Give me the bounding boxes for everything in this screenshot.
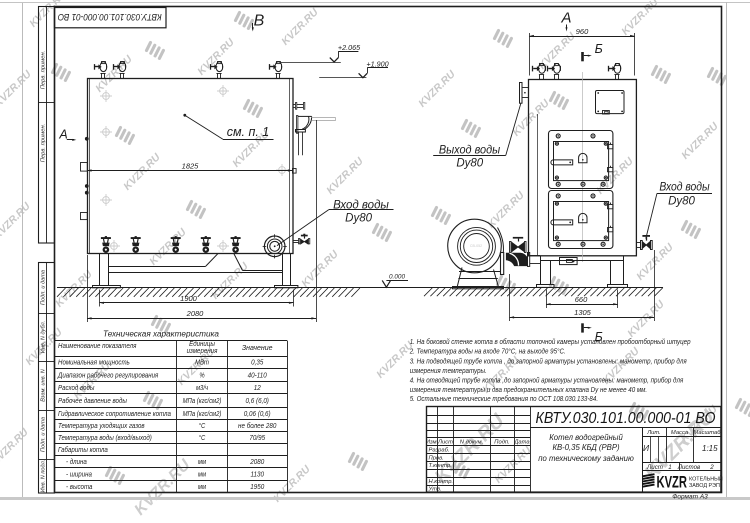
svg-text:1:15: 1:15 [702, 444, 718, 453]
svg-text:Выход воды: Выход воды [439, 144, 501, 156]
svg-text:Температура воды (вход/выход): Температура воды (вход/выход) [58, 434, 152, 442]
svg-text:0.000: 0.000 [389, 273, 405, 280]
svg-text:1: 1 [668, 464, 671, 471]
svg-text:ЗАВОД РЭП: ЗАВОД РЭП [689, 483, 720, 489]
svg-text:Дата: Дата [513, 439, 530, 445]
svg-text:мм: мм [198, 459, 207, 467]
svg-text:2080: 2080 [249, 459, 264, 466]
svg-text:Масса: Масса [671, 430, 689, 436]
svg-text:Dy80: Dy80 [456, 157, 483, 169]
svg-text:МВт: МВт [195, 359, 209, 367]
svg-text:Диапазон рабочего регулировани: Диапазон рабочего регулирования [57, 371, 159, 379]
svg-text:измерения: измерения [187, 348, 218, 355]
svg-text:2080: 2080 [186, 309, 205, 318]
svg-text:40-110: 40-110 [248, 372, 267, 379]
svg-text:°С: °С [199, 434, 206, 443]
svg-text:0,35: 0,35 [251, 359, 264, 366]
svg-text:Лист: Лист [646, 464, 663, 471]
svg-text:2: 2 [709, 464, 714, 471]
svg-text:5. Остальные технические треб: 5. Остальные технические требования по О… [410, 395, 598, 404]
svg-text:+1.900: +1.900 [366, 59, 388, 68]
svg-text:°С: °С [199, 422, 206, 431]
svg-text:Dy80: Dy80 [345, 212, 372, 224]
svg-text:Подп.: Подп. [494, 439, 509, 445]
svg-text:А: А [58, 128, 67, 142]
svg-text:Гидравлическое сопротивление к: Гидравлическое сопротивление котла [58, 410, 171, 418]
svg-text:м3/ч: м3/ч [196, 385, 209, 393]
svg-text:мм: мм [198, 483, 207, 491]
svg-text:Техническая характеристика: Техническая характеристика [103, 330, 219, 339]
svg-text:Лист: Лист [437, 439, 453, 445]
svg-text:Рабочее давление воды: Рабочее давление воды [58, 397, 127, 405]
svg-text:660: 660 [575, 295, 588, 304]
svg-text:12: 12 [254, 385, 261, 392]
svg-text:Перв. примен.: Перв. примен. [41, 124, 47, 163]
svg-text:Б: Б [595, 42, 603, 56]
svg-text:1900: 1900 [180, 294, 198, 303]
svg-text:не более 280: не более 280 [238, 422, 277, 430]
svg-text:Dy80: Dy80 [668, 195, 695, 207]
svg-text:70/95: 70/95 [249, 435, 265, 442]
svg-text:1. На боковой стенке котла в: 1. На боковой стенке котла в области топ… [410, 338, 691, 347]
svg-text:по техническому заданию: по техническому заданию [538, 453, 634, 462]
svg-text:960: 960 [576, 27, 589, 36]
svg-text:Перв. примен.: Перв. примен. [41, 51, 47, 90]
svg-text:1825: 1825 [182, 162, 200, 171]
svg-text:В: В [254, 13, 265, 30]
svg-text:Формат А3: Формат А3 [672, 493, 708, 500]
svg-text:МПа (кгс/см2): МПа (кгс/см2) [183, 411, 222, 419]
svg-text:Расход воды: Расход воды [58, 384, 95, 392]
svg-text:KVZR: KVZR [657, 474, 688, 492]
svg-text:Номинальная мощность: Номинальная мощность [58, 359, 130, 366]
svg-text:А: А [560, 10, 571, 27]
svg-text:+2.065: +2.065 [338, 43, 361, 52]
svg-text:Вход воды: Вход воды [659, 181, 709, 194]
svg-text:Разраб.: Разраб. [429, 448, 450, 454]
svg-text:Инв. N дубл.: Инв. N дубл. [41, 321, 47, 353]
svg-text:Подп. и дата: Подп. и дата [41, 270, 47, 305]
svg-text:- высота: - высота [66, 483, 93, 490]
svg-text:измерения температуры и два пр: измерения температуры и два предохраните… [410, 385, 648, 394]
svg-text:Подп. и дата: Подп. и дата [41, 417, 47, 452]
svg-text:КВ-0,35 КБД (РВР): КВ-0,35 КБД (РВР) [552, 443, 619, 452]
svg-text:Утв.: Утв. [428, 487, 442, 493]
svg-text:3. На подводящей трубе котла: 3. На подводящей трубе котла , до запорн… [410, 357, 687, 366]
svg-text:измерения температуры.: измерения температуры. [410, 368, 487, 376]
svg-text:Температура уходящих газов: Температура уходящих газов [58, 422, 145, 430]
svg-text:2. Температура воды на входе: 2. Температура воды на входе 70°С, на вы… [409, 347, 566, 356]
svg-text:1130: 1130 [250, 471, 264, 478]
svg-text:1950: 1950 [250, 483, 264, 490]
svg-text:Значение: Значение [242, 345, 273, 352]
svg-text:0,6 (6,0): 0,6 (6,0) [245, 398, 268, 405]
svg-text:N докум.: N докум. [460, 439, 483, 445]
svg-text:см. п. 1: см. п. 1 [227, 125, 270, 139]
svg-text:0,06 (0,6): 0,06 (0,6) [244, 411, 271, 418]
svg-text:- длина: - длина [66, 458, 87, 466]
svg-text:КВТУ.030.101.00.000-01 ВО: КВТУ.030.101.00.000-01 ВО [536, 410, 716, 427]
svg-text:Взам. инв. N: Взам. инв. N [41, 368, 47, 402]
svg-text:Н.контр.: Н.контр. [429, 479, 454, 485]
svg-text:%: % [199, 372, 204, 380]
svg-text:Лит.: Лит. [646, 430, 661, 436]
svg-text:Пров.: Пров. [429, 455, 444, 461]
svg-text:CB-052: CB-052 [470, 244, 482, 248]
svg-text:Инв. N подл.: Инв. N подл. [41, 460, 47, 493]
svg-text:- ширина: - ширина [66, 471, 92, 478]
svg-text:Изм.: Изм. [426, 439, 438, 445]
svg-text:Котел водогрейный: Котел водогрейный [549, 432, 623, 441]
svg-text:КВТУ.030.101.00.000-01 ВО: КВТУ.030.101.00.000-01 ВО [58, 12, 162, 22]
svg-text:Листов: Листов [677, 464, 701, 471]
svg-text:Т.контр.: Т.контр. [429, 463, 452, 469]
svg-text:Масштаб: Масштаб [693, 430, 721, 436]
svg-text:И: И [643, 443, 650, 453]
svg-text:4. На отводящей трубе котла ,: 4. На отводящей трубе котла ,до запорной… [410, 376, 684, 385]
svg-text:1305: 1305 [574, 308, 592, 317]
svg-text:Наименование показателя: Наименование показателя [58, 343, 137, 350]
svg-text:Габариты котла: Габариты котла [58, 446, 108, 454]
svg-text:мм: мм [198, 471, 207, 479]
svg-text:КОТЕЛЬНЫЙ: КОТЕЛЬНЫЙ [689, 475, 723, 483]
svg-text:МПа (кгс/см2): МПа (кгс/см2) [183, 398, 222, 406]
